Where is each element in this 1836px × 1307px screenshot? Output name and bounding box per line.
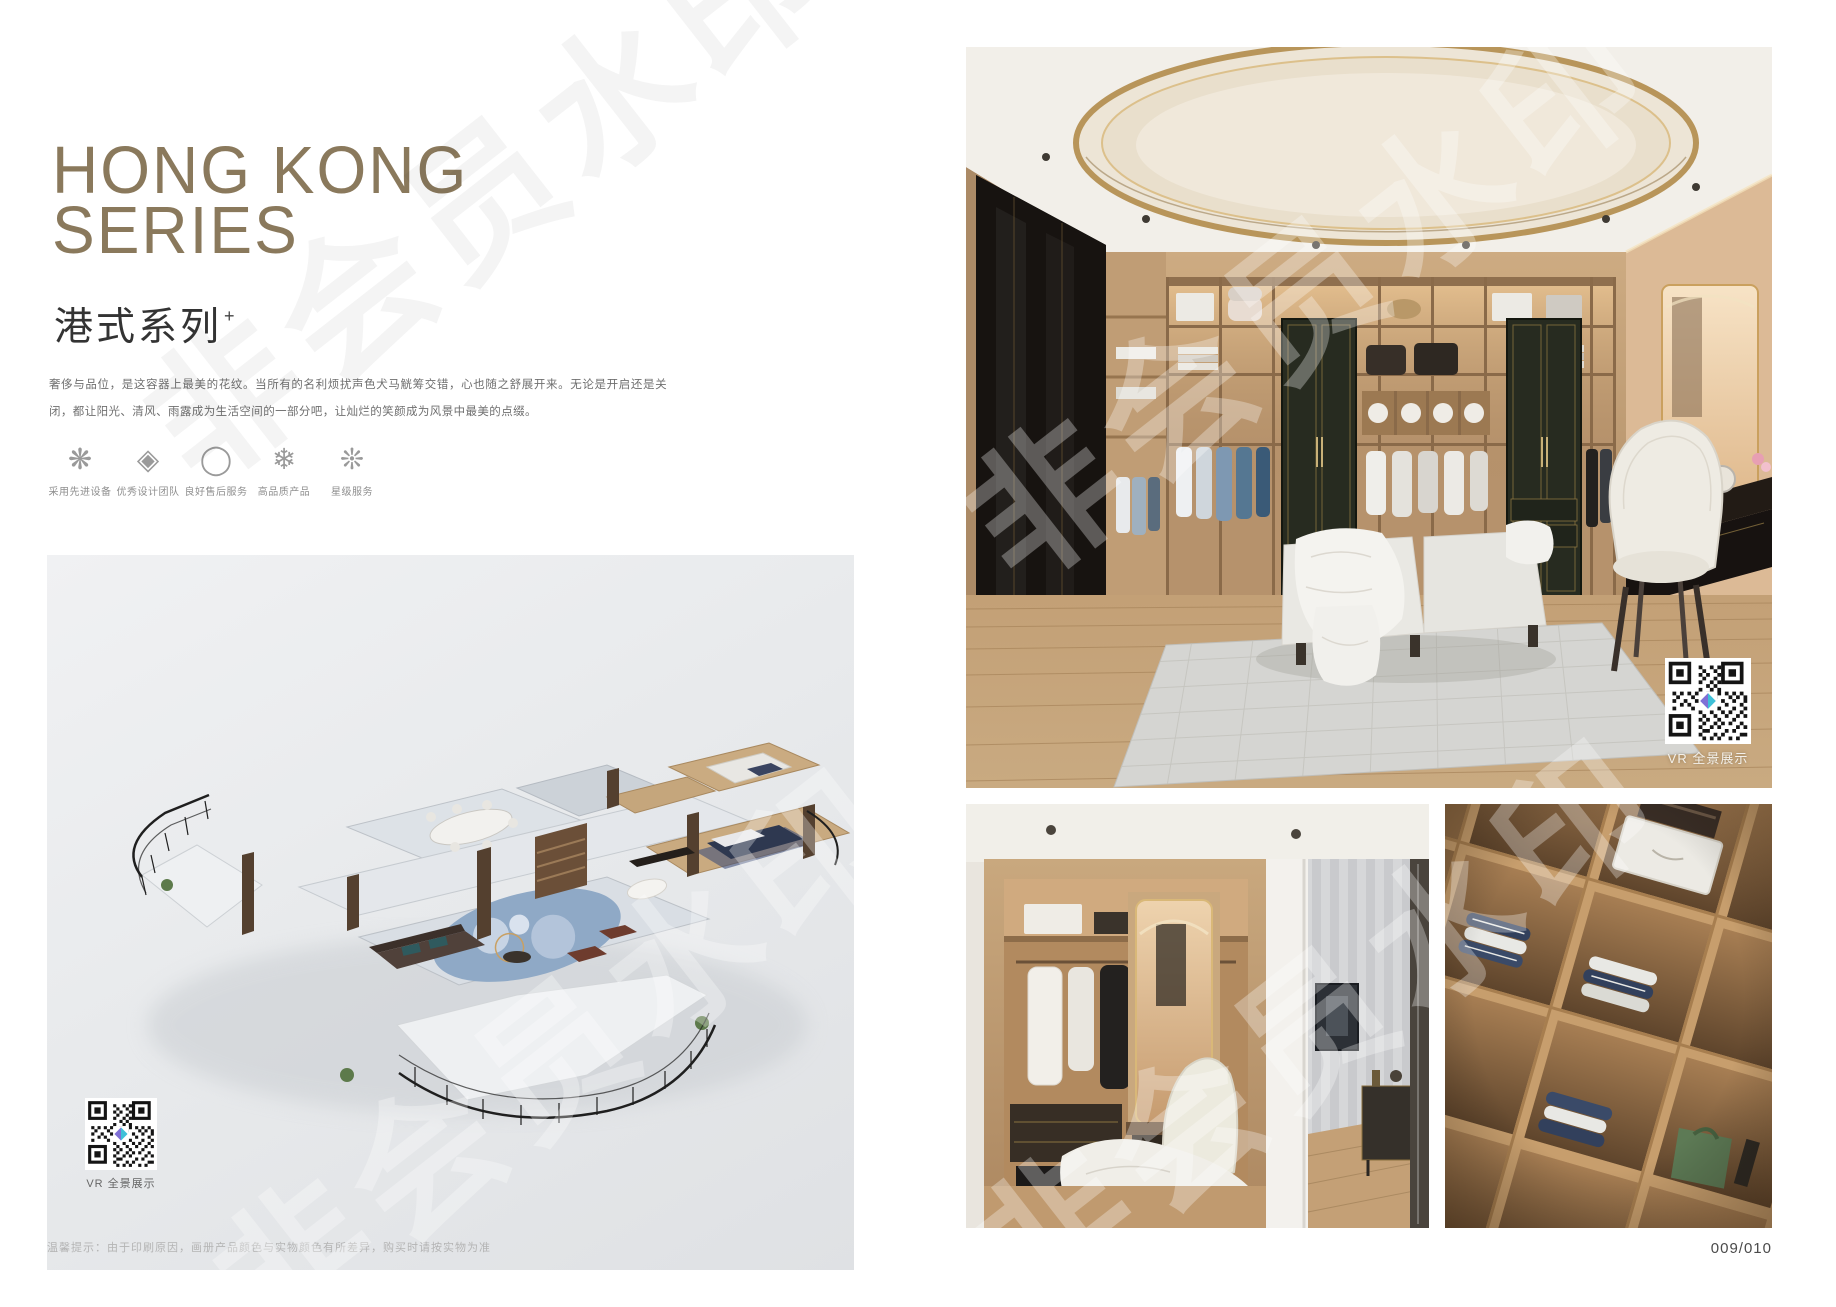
floor-strip [984, 1186, 1268, 1228]
feature-quality-product: ❄ 高品质产品 [250, 440, 318, 498]
left-shelf-column [1106, 252, 1166, 597]
page-number: 009/010 [1711, 1240, 1772, 1257]
feature-label: 良好售后服务 [182, 483, 250, 498]
vr-panorama-label: VR 全景展示 [1638, 748, 1772, 767]
feature-list: ❋ 采用先进设备 ◈ 优秀设计团队 ◯ 良好售后服务 ❄ 高品质产品 ❊ 星级服… [46, 440, 386, 498]
shelf-closeup-photo [1445, 804, 1772, 1228]
shelf-illustration [1445, 804, 1772, 1228]
feature-label: 星级服务 [318, 483, 386, 498]
series-title-cn: 港式系列+ [54, 296, 238, 352]
floorplan-render: VR 全景展示 [47, 555, 854, 1270]
ceiling [966, 804, 1429, 862]
print-disclaimer: 温馨提示：由于印刷原因，画册产品颜色与实物颜色有所差异，购买时请按实物为准 [47, 1239, 491, 1255]
catalog-spread: HONG KONG SERIES 港式系列+ 奢侈与品位，是这容器上最美的花纹。… [0, 0, 1836, 1307]
bed [1256, 520, 1556, 685]
series-description: 奢侈与品位，是这容器上最美的花纹。当所有的名利烦扰声色犬马觥筹交错，心也随之舒展… [49, 372, 667, 426]
floorplan-illustration [47, 555, 854, 1270]
vr-panorama-label: VR 全景展示 [55, 1175, 187, 1191]
glass-panel-edge [1410, 859, 1429, 1228]
ornament-diamond-icon: ◈ [114, 440, 182, 480]
walk-in-closet-photo: VR 全景展示 [966, 47, 1772, 788]
dressing-corner-photo [966, 804, 1429, 1228]
ceiling-oval [1076, 47, 1696, 243]
series-title-sup: + [224, 306, 238, 326]
pinwheel-icon: ❋ [46, 440, 114, 480]
feature-design-team: ◈ 优秀设计团队 [114, 440, 182, 498]
feature-advanced-equipment: ❋ 采用先进设备 [46, 440, 114, 498]
feature-star-service: ❊ 星级服务 [318, 440, 386, 498]
page-title: HONG KONG SERIES [52, 140, 468, 260]
star-ornament-icon: ❊ [318, 440, 386, 480]
dressing-illustration [966, 804, 1429, 1228]
qr-code [1665, 658, 1751, 744]
pillar [1266, 859, 1308, 1228]
snowflake-icon: ❄ [250, 440, 318, 480]
feature-label: 优秀设计团队 [114, 483, 182, 498]
page-title-line2: SERIES [52, 199, 468, 262]
ring-icon: ◯ [182, 440, 250, 480]
feature-label: 高品质产品 [250, 483, 318, 498]
feature-label: 采用先进设备 [46, 483, 114, 498]
qr-code [85, 1098, 157, 1170]
series-title-cn-text: 港式系列 [54, 306, 222, 349]
feature-after-sales: ◯ 良好售后服务 [182, 440, 250, 498]
hallway [1308, 859, 1429, 1228]
hat-cubbies [1362, 391, 1490, 435]
closet-illustration [966, 47, 1772, 788]
